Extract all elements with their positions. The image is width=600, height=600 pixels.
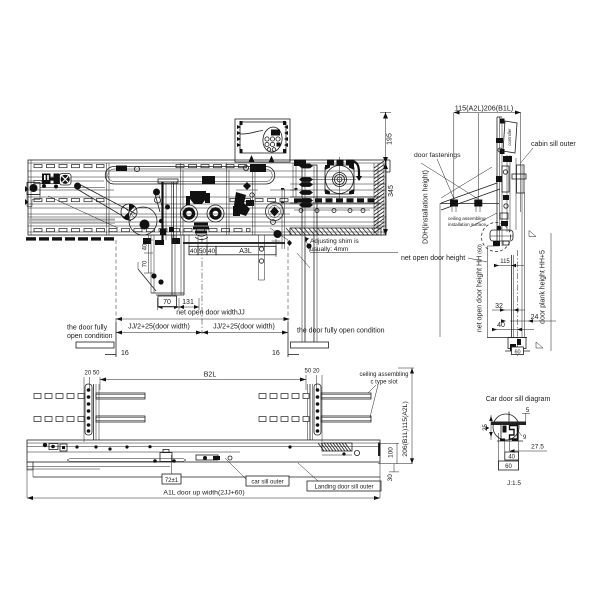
svg-text:70: 70 — [143, 260, 149, 267]
svg-text:70: 70 — [163, 299, 171, 306]
svg-text:40: 40 — [497, 322, 505, 329]
svg-text:car sill outer: car sill outer — [251, 480, 283, 486]
svg-text:16: 16 — [272, 350, 280, 357]
svg-text:60: 60 — [505, 464, 512, 470]
svg-text:50 20: 50 20 — [304, 369, 320, 375]
svg-text:net open door height: net open door height — [401, 255, 465, 262]
svg-text:195: 195 — [387, 133, 394, 145]
svg-text:5: 5 — [526, 407, 530, 414]
svg-text:net open door height HH: net open door height HH — [477, 256, 484, 332]
svg-text:115(A2L)206(B1L): 115(A2L)206(B1L) — [455, 104, 514, 113]
svg-text:27.5: 27.5 — [531, 444, 544, 451]
svg-text:30: 30 — [387, 474, 394, 482]
svg-text:345: 345 — [388, 185, 395, 197]
svg-text:72±1: 72±1 — [165, 478, 179, 484]
svg-text:open condition: open condition — [67, 333, 113, 340]
svg-text:J:1.5: J:1.5 — [507, 480, 521, 487]
svg-text:door plank height HH+5: door plank height HH+5 — [540, 250, 547, 324]
svg-text:controller: controller — [507, 128, 512, 146]
svg-text:usually: 4mm: usually: 4mm — [310, 246, 348, 253]
svg-text:Landing door sill outer: Landing door sill outer — [314, 485, 373, 491]
svg-text:Car door sill diagram: Car door sill diagram — [486, 396, 551, 403]
svg-text:16: 16 — [121, 350, 129, 357]
svg-text:40: 40 — [508, 455, 515, 461]
svg-text:door fastenings: door fastenings — [414, 152, 461, 159]
svg-text:(60): (60) — [478, 244, 484, 254]
svg-text:A3L: A3L — [239, 248, 252, 255]
svg-text:cabin sill outer: cabin sill outer — [531, 141, 576, 148]
svg-text:B2L: B2L — [204, 372, 217, 379]
svg-text:the door fully open condition: the door fully open condition — [297, 328, 385, 335]
svg-text:40: 40 — [143, 243, 149, 250]
svg-text:50: 50 — [199, 248, 207, 255]
svg-text:JJ/2+25(door width): JJ/2+25(door width) — [128, 324, 190, 331]
svg-text:40: 40 — [208, 248, 216, 255]
svg-text:ceiling assembling: ceiling assembling — [448, 216, 486, 221]
svg-text:ceiling assembling: ceiling assembling — [359, 372, 408, 378]
svg-text:100: 100 — [388, 447, 395, 458]
svg-text:c type slot: c type slot — [370, 380, 397, 386]
svg-text:115: 115 — [500, 259, 510, 265]
svg-text:60: 60 — [514, 350, 520, 356]
svg-text:25: 25 — [483, 424, 489, 431]
svg-text:40: 40 — [190, 248, 198, 255]
svg-text:installation surface: installation surface — [448, 222, 486, 227]
svg-text:131: 131 — [182, 299, 194, 306]
svg-text:20 50: 20 50 — [84, 371, 100, 377]
svg-text:DDH(installation height): DDH(installation height) — [423, 170, 430, 244]
svg-text:206(B1L)115(A2L): 206(B1L)115(A2L) — [402, 401, 409, 456]
svg-text:Adjusting shim is: Adjusting shim is — [310, 238, 360, 245]
svg-text:net open door widthJJ: net open door widthJJ — [176, 310, 245, 317]
svg-text:the door fully: the door fully — [67, 325, 108, 332]
svg-text:A1L door up width(2JJ+60): A1L door up width(2JJ+60) — [163, 490, 244, 497]
svg-text:JJ/2+25(door width): JJ/2+25(door width) — [213, 324, 275, 331]
